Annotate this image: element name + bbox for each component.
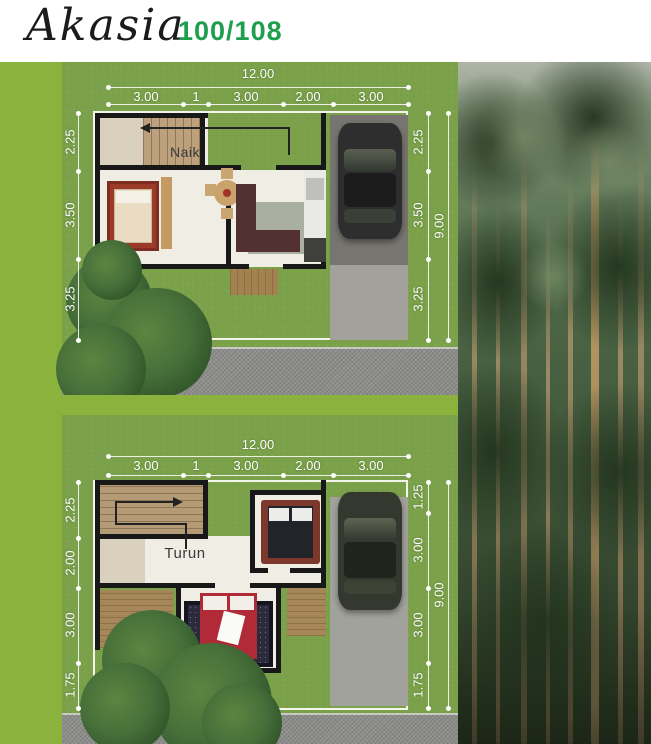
kitchen-sink	[306, 178, 324, 200]
wall	[250, 583, 326, 588]
dim-line	[108, 475, 408, 476]
dim-line	[108, 456, 408, 457]
dim-segment: 2.25	[63, 497, 78, 522]
table-centerpiece	[223, 189, 231, 197]
stove	[304, 238, 326, 262]
wall	[95, 480, 207, 485]
wall	[250, 490, 255, 573]
stair-label: Naik	[170, 144, 200, 160]
separator-band	[62, 395, 458, 415]
siteplan-ground: Naik 12.00 3.00 1 3.00 2.00 3.00 2.25 3.…	[62, 62, 458, 395]
car-rear-window	[344, 209, 396, 223]
dining-chair	[221, 208, 233, 219]
dim-line	[448, 113, 449, 340]
car-windshield	[344, 518, 396, 540]
wall	[276, 588, 281, 673]
stair-direction-arrow	[115, 523, 187, 525]
dim-segment: 1.25	[411, 484, 426, 509]
dim-segment: 1	[192, 89, 199, 104]
tree-canopy	[80, 663, 170, 744]
forest-photo	[458, 62, 651, 744]
wall	[95, 583, 176, 588]
dim-tick	[106, 85, 111, 90]
stair-direction-arrow	[115, 501, 173, 503]
wardrobe	[161, 177, 172, 249]
dim-segment: 2.25	[63, 129, 78, 154]
dim-segment: 3.00	[233, 89, 258, 104]
stair-direction-arrow	[150, 127, 290, 129]
brochure-page: Akasia 100/108	[0, 0, 651, 744]
stair-label: Turun	[164, 545, 205, 562]
dim-line	[428, 482, 429, 708]
wall	[95, 480, 100, 650]
dim-segment: 3.00	[358, 89, 383, 104]
dim-segment: 3.00	[411, 537, 426, 562]
bed-pillows	[292, 508, 312, 521]
sofa	[236, 230, 300, 252]
balcony-deck	[287, 588, 326, 636]
inner-garden	[208, 115, 326, 170]
dim-line	[108, 87, 408, 88]
car	[338, 492, 402, 610]
bed-pillows	[116, 191, 150, 203]
wall	[176, 583, 215, 588]
dim-tick	[76, 480, 81, 485]
dim-tick	[426, 111, 431, 116]
dim-tick	[76, 111, 81, 116]
wall	[95, 165, 207, 170]
dim-segment: 3.00	[358, 458, 383, 473]
stair-direction-arrow	[115, 501, 117, 525]
dim-line	[448, 482, 449, 708]
bed-pillows	[203, 596, 227, 610]
car-rear-window	[344, 580, 396, 594]
dim-total-width: 12.00	[242, 437, 275, 452]
dim-segment: 2.00	[63, 550, 78, 575]
car	[338, 123, 402, 239]
foyer-floor	[97, 115, 143, 170]
header: Akasia 100/108	[0, 0, 651, 62]
dim-total-width: 12.00	[242, 66, 275, 81]
dim-line	[108, 104, 408, 105]
forest-ground-shade	[458, 604, 651, 744]
dim-line	[78, 482, 79, 708]
siteplan-upper: Turun 12.00 3.00 1 3.00 2.00 3.00 2.25 2…	[62, 415, 458, 744]
dim-line	[78, 113, 79, 340]
arrow-head-icon	[140, 123, 150, 133]
car-roof	[344, 173, 396, 207]
wall	[203, 480, 208, 538]
dim-segment: 3.00	[133, 89, 158, 104]
car-windshield	[344, 149, 396, 171]
dim-segment: 3.50	[63, 202, 78, 227]
arrow-head-icon	[173, 497, 183, 507]
stair-direction-arrow	[288, 127, 290, 155]
dim-tick	[106, 454, 111, 459]
dim-tick	[446, 111, 451, 116]
front-terrace	[230, 269, 278, 295]
dim-segment: 2.00	[295, 458, 320, 473]
bed-pillows	[269, 508, 289, 521]
brand-title: Akasia	[26, 0, 186, 51]
dim-segment: 3.25	[63, 286, 78, 311]
type-spec-label: 100/108	[178, 16, 283, 47]
dim-segment: 2.00	[295, 89, 320, 104]
dim-segment: 3.00	[63, 612, 78, 637]
wall	[200, 113, 205, 170]
tree-foliage-highlight	[478, 92, 568, 182]
bed-pillows	[230, 596, 254, 610]
dim-segment: 1.75	[411, 672, 426, 697]
dim-line	[428, 113, 429, 340]
wall	[95, 113, 208, 118]
dim-tick	[446, 480, 451, 485]
dim-segment: 3.00	[133, 458, 158, 473]
wall	[95, 534, 208, 539]
dim-segment: 2.25	[411, 129, 426, 154]
tree-foliage-highlight	[518, 242, 588, 312]
tree-foliage-highlight	[568, 122, 648, 202]
dim-total-height: 9.00	[432, 213, 447, 238]
dining-chair	[221, 168, 233, 179]
wall	[321, 480, 326, 588]
dim-tick	[426, 480, 431, 485]
driveway-paving	[330, 265, 408, 340]
wall	[250, 568, 268, 573]
dim-segment: 3.00	[411, 612, 426, 637]
dim-segment: 3.25	[411, 286, 426, 311]
wall	[283, 264, 326, 269]
dim-segment: 3.00	[233, 458, 258, 473]
dim-tick	[106, 102, 111, 107]
car-roof	[344, 542, 396, 578]
staircase-up	[143, 115, 205, 170]
dim-total-height: 9.00	[432, 582, 447, 607]
dim-segment: 3.50	[411, 202, 426, 227]
left-accent-strip	[0, 62, 62, 744]
dim-segment: 1	[192, 458, 199, 473]
bathroom-floor	[100, 536, 145, 588]
wall	[250, 490, 326, 495]
dim-segment: 1.75	[63, 672, 78, 697]
dim-tick	[106, 473, 111, 478]
tree-canopy	[82, 240, 142, 300]
